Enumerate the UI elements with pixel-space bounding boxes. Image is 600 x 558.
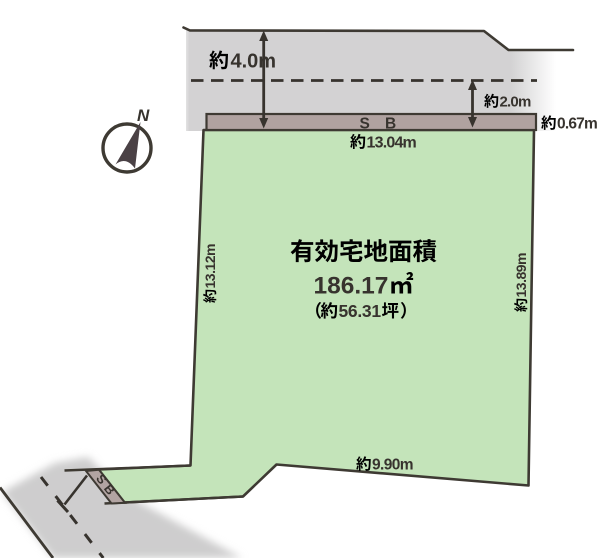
svg-text:13.04m: 13.04m: [367, 135, 417, 152]
svg-text:S: S: [360, 116, 370, 133]
svg-text:13.89m: 13.89m: [513, 253, 529, 298]
svg-text:186.17: 186.17: [314, 273, 389, 300]
svg-text:4.0m: 4.0m: [231, 51, 277, 73]
svg-text:56.31: 56.31: [339, 301, 382, 321]
svg-text:B: B: [385, 116, 396, 133]
svg-text:0.67m: 0.67m: [557, 116, 597, 133]
svg-text:9.90m: 9.90m: [372, 457, 413, 474]
svg-text:13.12m: 13.12m: [202, 244, 218, 289]
svg-text:2.0m: 2.0m: [500, 94, 531, 111]
svg-text:N: N: [137, 106, 150, 125]
